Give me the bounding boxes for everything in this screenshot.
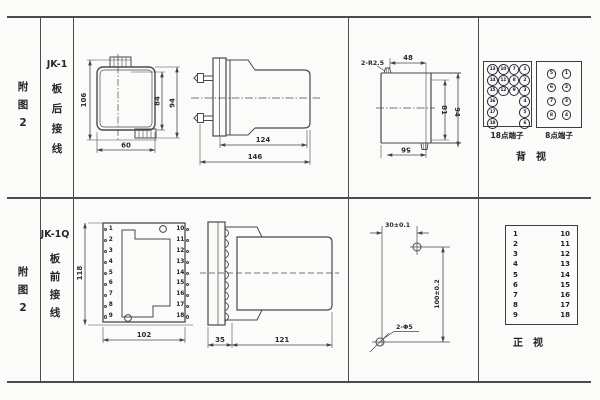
stud-screw bbox=[194, 114, 213, 123]
pin-number: 14 bbox=[176, 271, 184, 277]
dim-121: 121 bbox=[275, 336, 290, 344]
front-view-caption: 正 视 bbox=[500, 334, 556, 349]
terminal18-caption: 18点端子 bbox=[478, 130, 536, 141]
row2-figure-label: 附 图 2 bbox=[10, 266, 36, 320]
side-view bbox=[191, 58, 320, 165]
terminal-pin-18: 18 bbox=[487, 118, 498, 129]
terminal-pin-8: 8 bbox=[547, 110, 557, 120]
pin-number: 18 bbox=[176, 314, 184, 320]
frontview-pin-16: 16 bbox=[169, 292, 189, 298]
terminal-pin-4: 4 bbox=[562, 110, 572, 120]
pin-number: 10 bbox=[176, 227, 184, 233]
terminal-pin-6: 6 bbox=[547, 83, 557, 93]
table-number-5: 5 bbox=[513, 272, 518, 279]
pin-dot bbox=[104, 250, 107, 253]
frontview-right-terminals: 101112131415161718 bbox=[169, 227, 189, 320]
bottom-lug bbox=[421, 143, 428, 150]
dim-84: 84 bbox=[154, 96, 162, 106]
terminal-pin-17: 17 bbox=[487, 107, 498, 118]
mounting-hole bbox=[125, 315, 132, 322]
terminal-pin-1: 1 bbox=[519, 64, 530, 75]
row2-model-label: JK-1Q 板 前 接 线 bbox=[38, 229, 72, 325]
dim-60: 60 bbox=[121, 142, 131, 150]
table-number-18: 18 bbox=[560, 312, 570, 319]
pin-dot bbox=[104, 228, 107, 231]
table-number-10: 10 bbox=[560, 231, 570, 238]
terminal-pin-7: 7 bbox=[547, 97, 557, 107]
terminal18-grid: 131071141182151293164175186 bbox=[484, 62, 531, 126]
terminal-pin-6: 6 bbox=[519, 118, 530, 129]
frontview-pin-10: 10 bbox=[169, 227, 189, 233]
pin-number: 15 bbox=[176, 281, 184, 287]
table-number-9: 9 bbox=[513, 312, 518, 319]
model-char: 接 bbox=[52, 123, 63, 135]
terminal-pin-10: 10 bbox=[498, 64, 509, 75]
row1-panel-cutout-drawing: 2-R2.5 48 81 94 56 bbox=[348, 16, 478, 197]
table-number-3: 3 bbox=[513, 251, 518, 258]
table-number-16: 16 bbox=[560, 292, 570, 299]
mounting-hole bbox=[160, 226, 167, 233]
terminal-pin-12: 12 bbox=[498, 86, 509, 97]
pin-number: 17 bbox=[176, 303, 184, 309]
frontview-pin-2: 2 bbox=[104, 238, 113, 244]
dim-118: 118 bbox=[76, 266, 84, 281]
dim-106: 106 bbox=[80, 93, 88, 108]
hole-leader bbox=[383, 332, 419, 340]
pin-number: 7 bbox=[109, 292, 113, 298]
rear-view-caption: 背 视 bbox=[498, 148, 564, 163]
frontview-pin-14: 14 bbox=[169, 271, 189, 277]
terminal-pin-15: 15 bbox=[487, 86, 498, 97]
model-char: 前 bbox=[50, 271, 61, 283]
table-number-1: 1 bbox=[513, 231, 518, 238]
fig-char: 附 bbox=[18, 81, 29, 93]
relay-body bbox=[255, 70, 310, 128]
terminal-pin-8: 8 bbox=[509, 75, 520, 86]
fig-char: 图 bbox=[18, 99, 29, 111]
pin-dot bbox=[186, 250, 189, 253]
terminal-pin-7: 7 bbox=[509, 64, 520, 75]
frontview-pin-5: 5 bbox=[104, 271, 113, 277]
dim-48: 48 bbox=[403, 54, 413, 62]
hole-diameter-label: 2-Φ5 bbox=[396, 324, 413, 331]
dim-81: 81 bbox=[440, 105, 448, 115]
pin-dot bbox=[186, 228, 189, 231]
dim-35: 35 bbox=[215, 336, 225, 344]
terminal-pin-2: 2 bbox=[562, 83, 572, 93]
fig-char: 图 bbox=[18, 284, 29, 296]
pin-dot bbox=[186, 294, 189, 297]
pin-number: 9 bbox=[109, 314, 113, 320]
relay-body bbox=[237, 237, 332, 310]
terminal-number-table: 123456789 101112131415161718 bbox=[505, 225, 578, 325]
terminal8-grid: 51627384 bbox=[537, 62, 581, 127]
pin-number: 11 bbox=[176, 238, 184, 244]
model-name: JK-1 bbox=[47, 59, 68, 71]
terminal8-panel: 51627384 bbox=[536, 61, 582, 128]
table-number-14: 14 bbox=[560, 272, 570, 279]
dim-124: 124 bbox=[256, 136, 271, 144]
terminal-pin-16: 16 bbox=[487, 96, 498, 107]
terminal-pin-3: 3 bbox=[519, 86, 530, 97]
dimensions bbox=[87, 60, 180, 153]
frontview-pin-9: 9 bbox=[104, 314, 113, 320]
stud-screw bbox=[194, 74, 213, 83]
model-name: JK-1Q bbox=[41, 229, 70, 241]
pin-number: 6 bbox=[109, 281, 113, 287]
table-col-divider-4 bbox=[478, 16, 479, 381]
fig-char: 2 bbox=[19, 117, 26, 129]
terminal-table-right: 101112131415161718 bbox=[560, 231, 570, 319]
terminal-pin-5: 5 bbox=[519, 107, 530, 118]
pin-dot bbox=[186, 315, 189, 318]
dim-100: 100±0.2 bbox=[434, 279, 441, 309]
terminal-pin-3: 3 bbox=[562, 97, 572, 107]
terminal-pin-5: 5 bbox=[547, 69, 557, 79]
frontview-pin-1: 1 bbox=[104, 227, 113, 233]
table-number-12: 12 bbox=[560, 251, 570, 258]
terminal-table-left: 123456789 bbox=[513, 231, 518, 319]
table-number-6: 6 bbox=[513, 282, 518, 289]
top-terminal-block bbox=[110, 57, 131, 67]
dim-94: 94 bbox=[453, 107, 461, 117]
terminal-pin-4: 4 bbox=[519, 96, 530, 107]
table-number-8: 8 bbox=[513, 302, 518, 309]
pin-number: 16 bbox=[176, 292, 184, 298]
terminal-pin-2: 2 bbox=[519, 75, 530, 86]
fig-char: 2 bbox=[19, 302, 26, 314]
rear-mount-view bbox=[87, 54, 180, 153]
pin-dot bbox=[186, 283, 189, 286]
dimensions bbox=[208, 312, 332, 348]
model-char: 接 bbox=[50, 289, 61, 301]
frontview-pin-17: 17 bbox=[169, 303, 189, 309]
dim-56: 56 bbox=[401, 146, 411, 154]
pin-dot bbox=[186, 239, 189, 242]
pin-dot bbox=[186, 272, 189, 275]
dim-94: 94 bbox=[169, 98, 177, 108]
radius-label: 2-R2.5 bbox=[361, 60, 384, 67]
frontview-pin-13: 13 bbox=[169, 260, 189, 266]
row2-outline-drawings: 118 102 35 121 bbox=[73, 197, 348, 382]
frontview-pin-7: 7 bbox=[104, 292, 113, 298]
row1-outline-drawings: 106 60 84 94 bbox=[73, 16, 348, 197]
table-number-7: 7 bbox=[513, 292, 518, 299]
pin-dot bbox=[186, 261, 189, 264]
frontview-pin-8: 8 bbox=[104, 303, 113, 309]
table-number-15: 15 bbox=[560, 282, 570, 289]
frontview-pin-12: 12 bbox=[169, 249, 189, 255]
model-char: 后 bbox=[52, 103, 63, 115]
figure-page: 附 图 2 JK-1 板 后 接 线 附 图 2 JK-1Q 板 前 接 线 bbox=[0, 0, 600, 400]
pin-number: 2 bbox=[109, 238, 113, 244]
terminal-pin-11: 11 bbox=[498, 75, 509, 86]
terminal8-caption: 8点端子 bbox=[534, 130, 584, 141]
pin-number: 8 bbox=[109, 303, 113, 309]
pin-dot bbox=[104, 315, 107, 318]
terminal18-panel: 131071141182151293164175186 bbox=[483, 61, 532, 127]
pin-number: 12 bbox=[176, 249, 184, 255]
terminal-pin-14: 14 bbox=[487, 75, 498, 86]
front-plate-edge bbox=[208, 222, 225, 325]
pin-dot bbox=[104, 272, 107, 275]
model-char: 板 bbox=[50, 253, 61, 265]
pin-dot bbox=[186, 305, 189, 308]
frontview-pin-3: 3 bbox=[104, 249, 113, 255]
model-char: 板 bbox=[52, 83, 63, 95]
pin-number: 4 bbox=[109, 260, 113, 266]
frontview-left-terminals: 123456789 bbox=[104, 227, 113, 320]
table-number-11: 11 bbox=[560, 241, 570, 248]
pin-dot bbox=[104, 261, 107, 264]
dim-102: 102 bbox=[137, 331, 152, 339]
pin-number: 3 bbox=[109, 249, 113, 255]
pin-dot bbox=[104, 305, 107, 308]
table-number-2: 2 bbox=[513, 241, 518, 248]
pin-dot bbox=[104, 294, 107, 297]
frontview-pin-15: 15 bbox=[169, 281, 189, 287]
cover-outline bbox=[122, 230, 170, 317]
dim-146: 146 bbox=[248, 153, 263, 161]
table-number-13: 13 bbox=[560, 261, 570, 268]
dim-30: 30±0.1 bbox=[385, 222, 410, 229]
pin-dot bbox=[104, 239, 107, 242]
model-char: 线 bbox=[52, 143, 63, 155]
fig-char: 附 bbox=[18, 266, 29, 278]
model-char: 线 bbox=[50, 307, 61, 319]
pin-dot bbox=[104, 283, 107, 286]
row1-figure-label: 附 图 2 bbox=[10, 81, 36, 135]
terminal-pin-13: 13 bbox=[487, 64, 498, 75]
row2-drilling-template: 30±0.1 100±0.2 2-Φ5 bbox=[348, 197, 478, 382]
table-number-4: 4 bbox=[513, 261, 518, 268]
frontview-pin-18: 18 bbox=[169, 314, 189, 320]
side-view bbox=[200, 222, 339, 348]
pin-number: 1 bbox=[109, 227, 113, 233]
frontview-pin-6: 6 bbox=[104, 281, 113, 287]
row1-model-label: JK-1 板 后 接 线 bbox=[42, 59, 72, 163]
terminal-pin-1: 1 bbox=[562, 69, 572, 79]
table-number-17: 17 bbox=[560, 302, 570, 309]
frontview-pin-4: 4 bbox=[104, 260, 113, 266]
pin-number: 5 bbox=[109, 271, 113, 277]
terminal-pin-9: 9 bbox=[509, 86, 520, 97]
pin-number: 13 bbox=[176, 260, 184, 266]
frontview-pin-11: 11 bbox=[169, 238, 189, 244]
